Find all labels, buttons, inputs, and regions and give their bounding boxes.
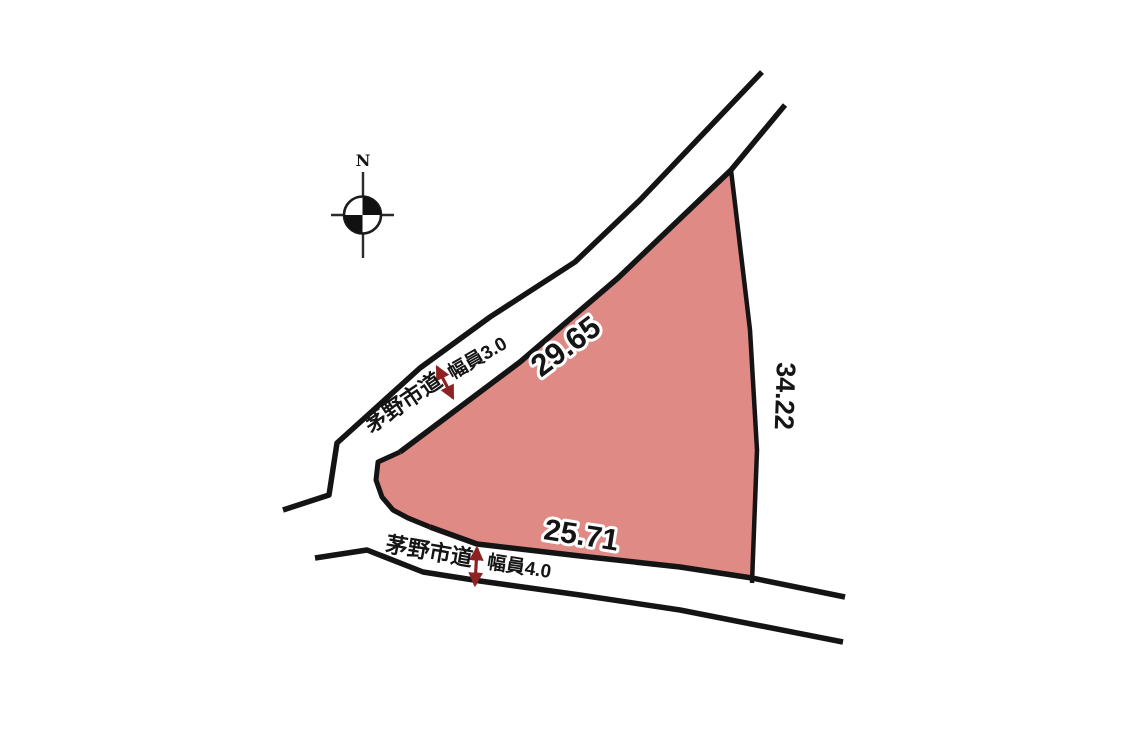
- compass-north-label: N: [356, 151, 371, 170]
- south-road-width-label: 幅員4.0: [486, 550, 553, 583]
- compass-sw-quadrant: [344, 215, 363, 234]
- north-compass: N: [331, 151, 394, 258]
- dimension-east-label: 34.22: [769, 362, 801, 431]
- compass-ne-quadrant: [363, 197, 382, 216]
- land-plot-diagram: N 茅野市道 幅員3.0 29.65 34.22 25.71 茅野市道 幅員4.…: [0, 0, 1132, 751]
- south-road-lower-line: [315, 550, 843, 642]
- south-road-width-arrow: [475, 548, 477, 585]
